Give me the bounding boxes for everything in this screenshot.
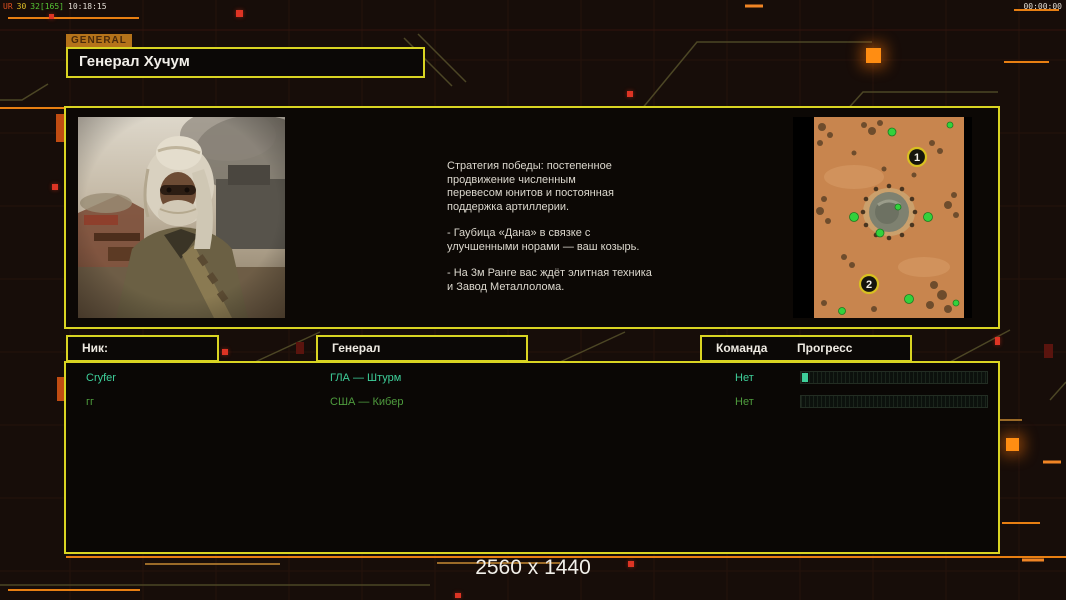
header-box-nick: Ник: xyxy=(66,335,219,362)
red-square-deco xyxy=(627,91,633,97)
player-row[interactable]: гг США — Кибер Нет xyxy=(66,392,998,414)
panel-edge-tab xyxy=(57,377,64,401)
perf-overlay-segment: 32[165] xyxy=(30,2,64,11)
orange-glow-square xyxy=(866,48,881,63)
svg-text:1: 1 xyxy=(914,152,920,164)
header-box-general: Генерал xyxy=(316,335,528,362)
player-nick: Cryfer xyxy=(86,372,116,384)
briefing-paragraph: - На 3м Ранге вас ждёт элитная техника и… xyxy=(447,267,777,294)
player-nick: гг xyxy=(86,396,94,408)
player-general: ГЛА — Штурм xyxy=(330,372,401,384)
match-briefing-screen: { "hud": { "perf_overlay": { "segments":… xyxy=(0,0,1066,600)
player-general: США — Кибер xyxy=(330,396,403,408)
general-portrait xyxy=(78,117,285,318)
player-team: Нет xyxy=(735,396,754,408)
red-square-deco xyxy=(455,593,461,598)
player-team: Нет xyxy=(735,372,754,384)
minimap-image: 1 2 xyxy=(814,117,964,318)
resolution-label: 2560 x 1440 xyxy=(0,556,1066,580)
panel-edge-tab xyxy=(56,114,64,142)
perf-overlay-segment: 30 xyxy=(17,2,27,11)
performance-overlay: UR3032[165]10:18:15 xyxy=(3,2,111,11)
red-square-deco xyxy=(236,10,243,17)
red-square-deco xyxy=(52,184,58,190)
load-progress-bar xyxy=(800,395,988,408)
player-row[interactable]: Cryfer ГЛА — Штурм Нет xyxy=(66,368,998,390)
red-square-deco xyxy=(995,337,1000,345)
strategy-briefing: Стратегия победы: постепенное продвижени… xyxy=(447,160,777,307)
portrait-image xyxy=(78,117,285,318)
briefing-panel: Стратегия победы: постепенное продвижени… xyxy=(64,106,1000,329)
header-progress-label: Прогресс xyxy=(797,341,852,355)
minimap: 1 2 xyxy=(793,117,972,318)
briefing-paragraph: - Гаубица «Дана» в связке с улучшенными … xyxy=(447,227,777,254)
red-square-dim-deco xyxy=(296,342,304,354)
header-general-label: Генерал xyxy=(332,341,380,355)
header-nick-label: Ник: xyxy=(82,341,108,355)
minimap-marker-2: 2 xyxy=(860,275,878,293)
progress-fill xyxy=(802,373,808,382)
header-box-team-progress: Команда Прогресс xyxy=(700,335,912,362)
load-progress-bar xyxy=(800,371,988,384)
minimap-marker-1: 1 xyxy=(908,148,926,166)
general-title-box: Генерал Хучум xyxy=(66,47,425,78)
perf-overlay-segment: UR xyxy=(3,2,13,11)
player-list-panel: Cryfer ГЛА — Штурм Нет гг США — Кибер Не… xyxy=(64,361,1000,554)
orange-glow-square xyxy=(1006,438,1019,451)
red-square-dim-deco xyxy=(1044,344,1053,358)
svg-text:2: 2 xyxy=(866,279,872,291)
tab-general[interactable]: GENERAL xyxy=(66,34,132,47)
briefing-paragraph: Стратегия победы: постепенное продвижени… xyxy=(447,160,777,214)
perf-overlay-segment: 10:18:15 xyxy=(68,2,107,11)
match-timer: 00:00:00 xyxy=(1023,2,1062,11)
page-title: Генерал Хучум xyxy=(79,53,423,70)
header-team-label: Команда xyxy=(716,341,767,355)
red-square-deco xyxy=(49,14,54,19)
red-square-deco xyxy=(222,349,228,355)
